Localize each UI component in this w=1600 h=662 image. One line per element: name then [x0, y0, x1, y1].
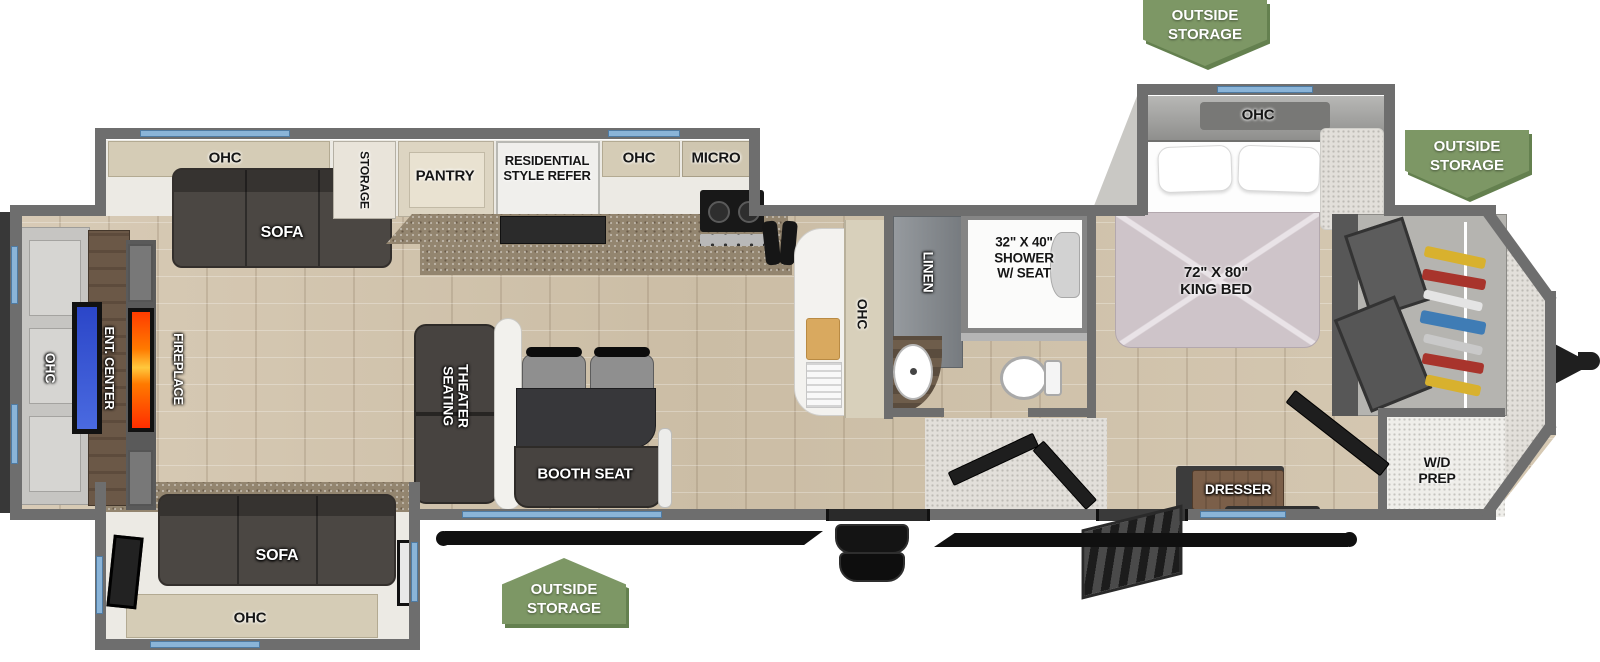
entry-step — [835, 524, 909, 554]
theater-seating-label: THEATER SEATING — [440, 364, 471, 428]
bath-bottom-wall — [884, 408, 944, 417]
window — [140, 130, 290, 137]
slideout-ohc-label: OHC — [209, 149, 242, 166]
window — [11, 404, 18, 464]
badge-shape: OUTSIDE STORAGE — [1405, 130, 1529, 198]
clothes-hanger — [1424, 374, 1481, 396]
tv-screen — [72, 302, 102, 434]
clothes-hanger — [1422, 353, 1485, 375]
rear-sofa-back-shade — [160, 496, 394, 516]
faucet — [910, 368, 917, 375]
fireplace-cabinet-door — [128, 244, 153, 302]
peninsula-ohc-label: OHC — [854, 299, 869, 330]
clothes-hanger — [1423, 289, 1483, 311]
bath-left-wall — [884, 211, 893, 419]
kitchen-ohc-label: OHC — [623, 149, 656, 166]
shower-seat — [1050, 232, 1080, 298]
sofa-label: SOFA — [261, 224, 304, 242]
bath-bottom-wall — [1028, 408, 1096, 417]
nose-wall-front — [1545, 291, 1556, 435]
outside-storage-badge-bottom: OUTSIDE STORAGE — [502, 558, 632, 628]
rear-sofa — [158, 494, 396, 586]
top-wall — [10, 205, 100, 216]
hitch-bar — [1578, 352, 1600, 370]
bottom-wall — [10, 509, 100, 520]
floorplan-diagram: OHC ENT. CENTER FIREPLACE OHC SOFA STORA… — [0, 0, 1600, 662]
chair-back-bar — [526, 347, 582, 357]
dresser-label: DRESSER — [1205, 481, 1271, 497]
main-entry-door-opening — [826, 509, 930, 521]
burner — [708, 201, 730, 223]
badge-shape: OUTSIDE STORAGE — [1143, 0, 1267, 66]
booth-table — [516, 388, 656, 448]
bedroom-ohc-label: OHC — [1242, 106, 1275, 123]
top-wall — [755, 205, 1145, 216]
clothes-hanger — [1422, 269, 1487, 291]
kitchen-slideout-left-wall — [95, 128, 106, 216]
outside-storage-badge-top: OUTSIDE STORAGE — [1143, 0, 1273, 70]
bedroom-slideout-right-wall — [1384, 84, 1395, 215]
kitchen-carpet — [420, 243, 792, 275]
window — [411, 542, 418, 602]
fireplace-cabinet-door — [128, 450, 153, 506]
bedroom-slideout-skirt — [1090, 96, 1137, 216]
window — [150, 641, 260, 648]
clothes-hanger — [1419, 310, 1486, 335]
clothes-hanger — [1423, 333, 1483, 355]
window — [11, 246, 18, 304]
window — [1217, 86, 1313, 93]
linen-label: LINEN — [920, 251, 935, 292]
shower-label: 32" X 40" SHOWER W/ SEAT — [994, 235, 1054, 282]
bedroom-slideout-left-wall — [1137, 84, 1148, 215]
rear-sofa-label: SOFA — [256, 547, 299, 565]
awning-rail-left — [445, 531, 823, 545]
kitchen-slideout-right-wall — [749, 128, 760, 216]
wd-prep-label: W/D PREP — [1418, 454, 1455, 486]
window — [96, 556, 103, 614]
bath-right-wall — [1087, 211, 1096, 418]
refrigerator-label: RESIDENTIAL STYLE REFER — [503, 154, 590, 184]
sink-drying-rack — [806, 362, 842, 408]
hanging-clothes — [1420, 250, 1494, 400]
dishwasher — [500, 216, 606, 244]
bath-sink — [893, 344, 933, 400]
storage-label: STORAGE — [357, 151, 370, 209]
clothes-hanger — [1424, 246, 1487, 270]
micro-label: MICRO — [692, 149, 741, 166]
toilet-tank — [1044, 360, 1062, 396]
pillow — [1157, 145, 1233, 194]
rear-sofa-ohc-label: OHC — [234, 609, 267, 626]
toilet-bowl — [1000, 356, 1048, 400]
window — [462, 511, 662, 518]
rear-ohc-label: OHC — [42, 353, 57, 384]
pillow — [1237, 145, 1321, 194]
cooktop-knob-strip — [700, 234, 764, 246]
rear-bumper — [0, 212, 10, 513]
badge-shape: OUTSIDE STORAGE — [502, 558, 626, 624]
window — [1200, 511, 1286, 518]
fireplace-label: FIREPLACE — [171, 333, 185, 405]
ent-center-label: ENT. CENTER — [102, 326, 116, 409]
shower-ledge — [961, 333, 1089, 341]
entry-step — [839, 552, 905, 582]
king-bed-label: 72" X 80" KING BED — [1180, 264, 1252, 299]
window — [608, 130, 680, 137]
booth-seat-label: BOOTH SEAT — [537, 465, 632, 482]
fireplace-flame — [128, 308, 154, 432]
outside-storage-badge-front: OUTSIDE STORAGE — [1405, 130, 1535, 202]
cutting-board — [806, 318, 840, 360]
awning-rail-right — [934, 533, 1348, 547]
wd-top-wall — [1378, 408, 1505, 417]
awning-rail-right-cap — [1342, 532, 1357, 547]
entry-steps — [833, 522, 911, 584]
chair-back-bar — [594, 347, 650, 357]
pantry-label: PANTRY — [416, 167, 475, 184]
booth-side-cushion — [658, 428, 672, 508]
